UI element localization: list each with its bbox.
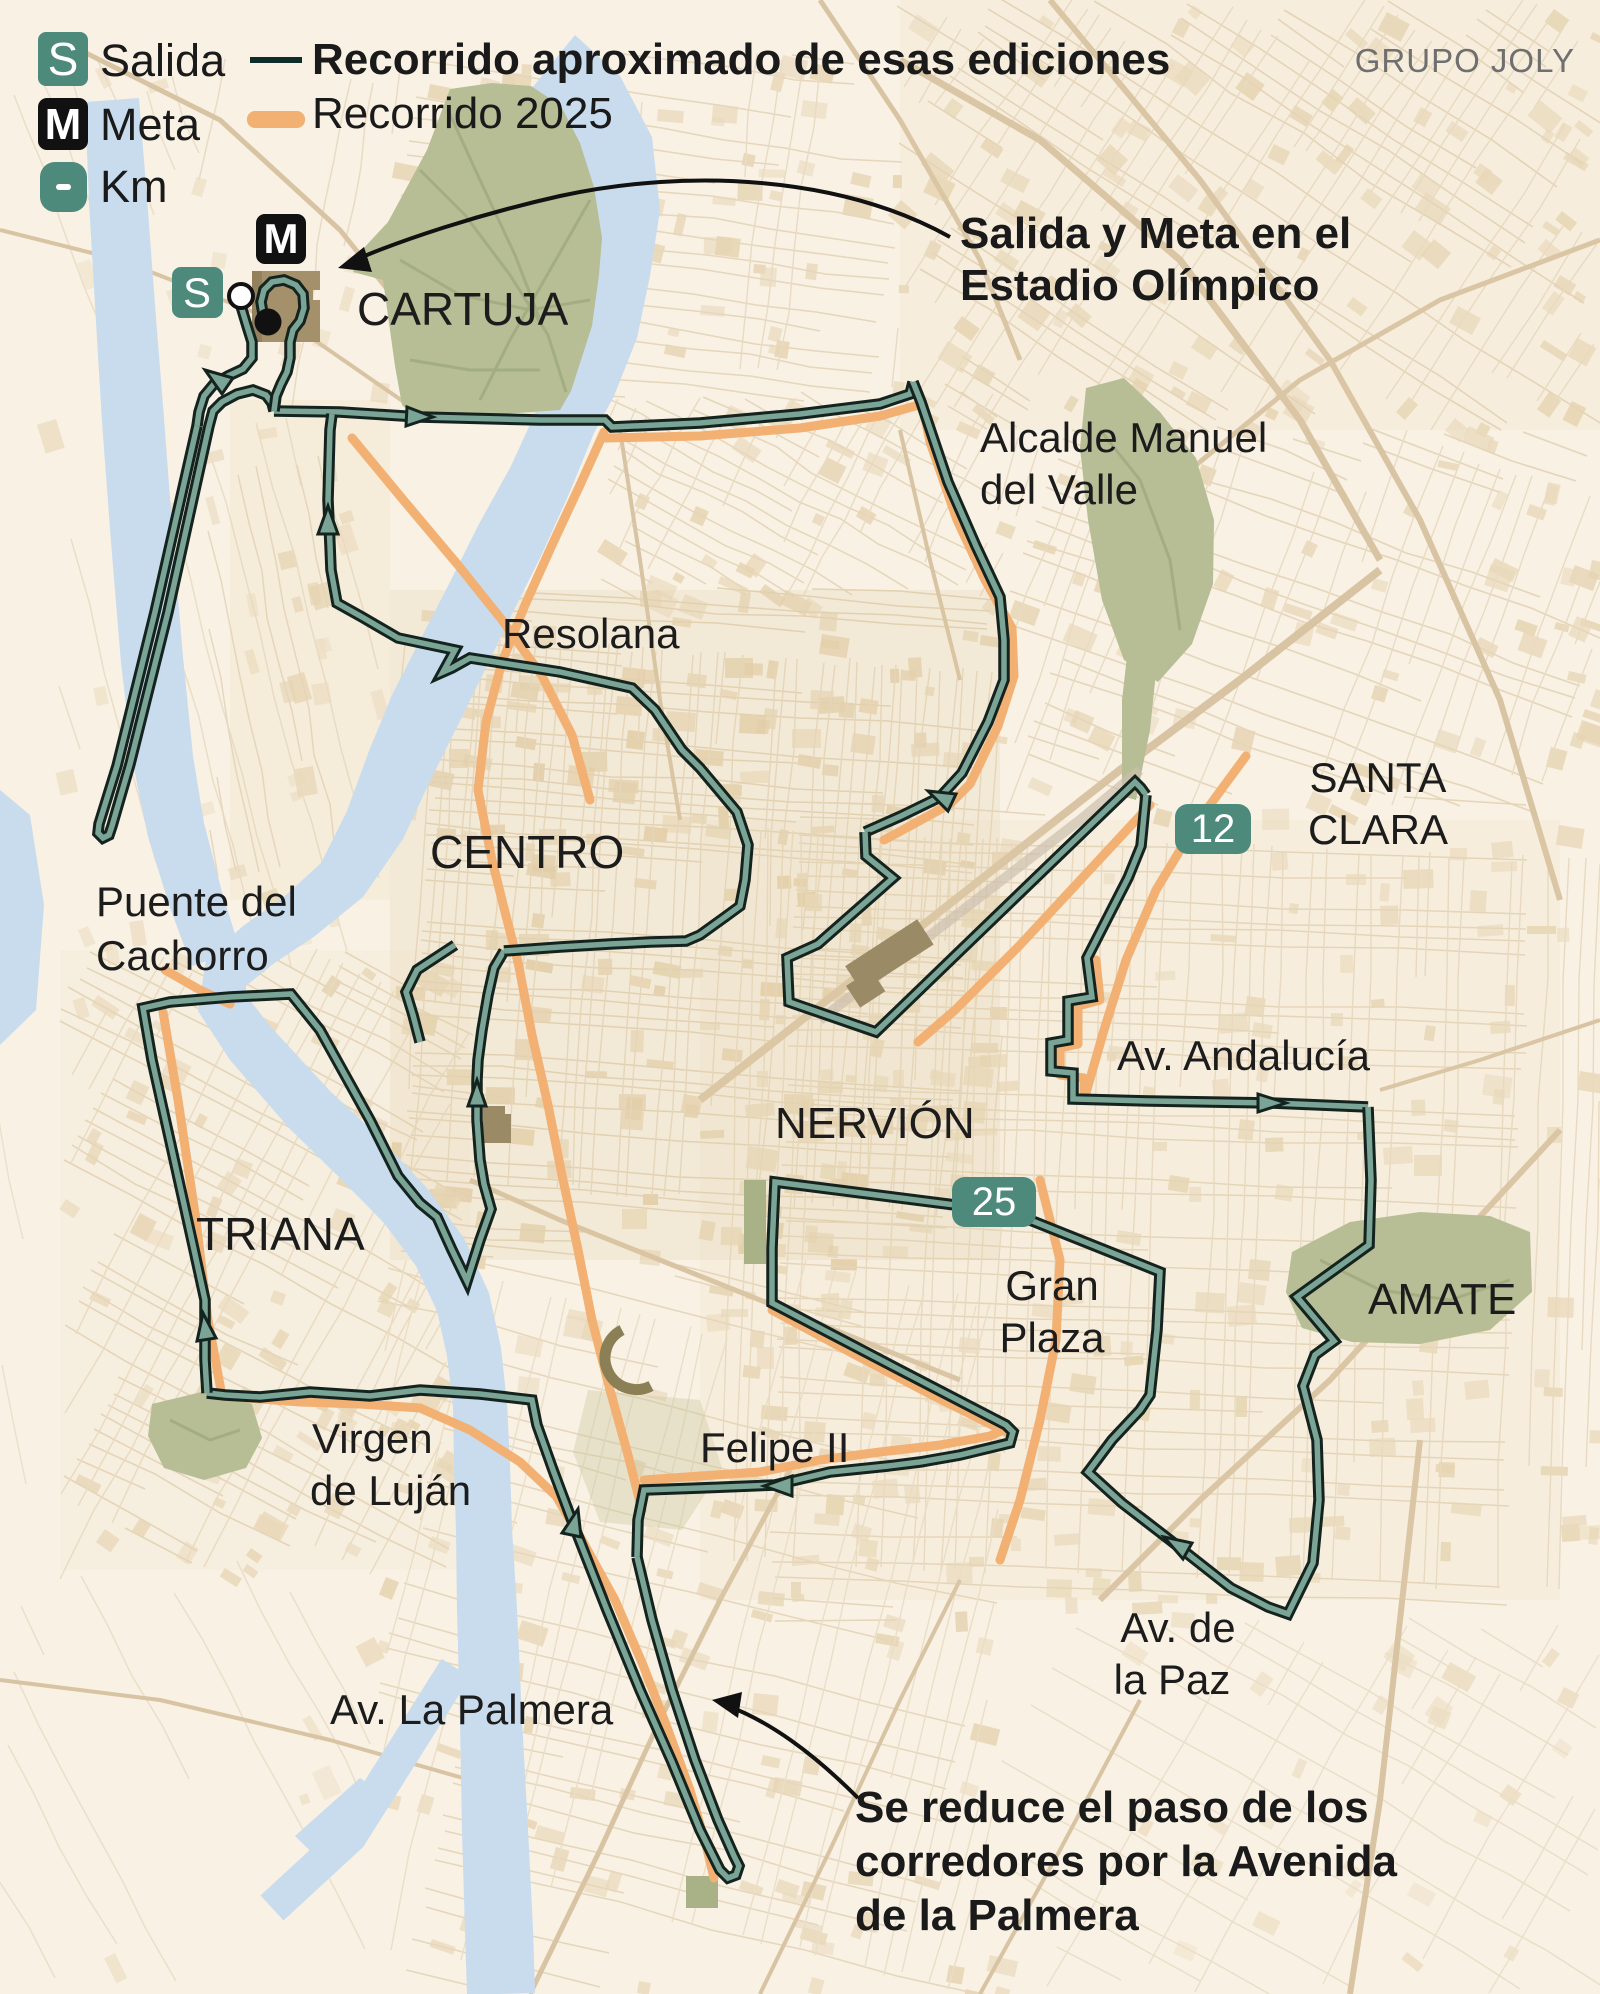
svg-text:GRUPO JOLY: GRUPO JOLY (1355, 42, 1575, 79)
svg-text:Av. de: Av. de (1120, 1604, 1235, 1651)
svg-text:Recorrido 2025: Recorrido 2025 (312, 89, 613, 138)
svg-text:Av. Andalucía: Av. Andalucía (1117, 1032, 1371, 1079)
svg-text:corredores por la Avenida: corredores por la Avenida (855, 1837, 1398, 1886)
svg-text:de Luján: de Luján (310, 1467, 471, 1514)
svg-text:NERVIÓN: NERVIÓN (775, 1099, 975, 1148)
svg-text:Av. La Palmera: Av. La Palmera (330, 1686, 614, 1733)
svg-text:M: M (45, 100, 82, 149)
svg-text:Estadio Olímpico: Estadio Olímpico (960, 261, 1319, 310)
svg-text:Plaza: Plaza (999, 1314, 1105, 1361)
svg-text:Recorrido aproximado de esas e: Recorrido aproximado de esas ediciones (312, 35, 1170, 84)
svg-text:Virgen: Virgen (312, 1415, 433, 1462)
svg-text:CARTUJA: CARTUJA (357, 283, 569, 335)
svg-text:25: 25 (972, 1180, 1017, 1224)
svg-text:Salida y Meta en el: Salida y Meta en el (960, 209, 1351, 258)
svg-text:la Paz: la Paz (1114, 1656, 1231, 1703)
svg-text:S: S (48, 33, 79, 85)
svg-text:12: 12 (1191, 807, 1236, 851)
svg-text:de la Palmera: de la Palmera (855, 1891, 1139, 1940)
svg-text:del Valle: del Valle (980, 466, 1138, 513)
svg-text:Se reduce el paso de los: Se reduce el paso de los (855, 1783, 1369, 1832)
svg-text:TRIANA: TRIANA (196, 1208, 365, 1260)
svg-text:CLARA: CLARA (1308, 806, 1448, 853)
svg-text:M: M (264, 215, 299, 262)
svg-text:Resolana: Resolana (502, 610, 680, 657)
svg-text:S: S (183, 269, 211, 316)
svg-text:Alcalde Manuel: Alcalde Manuel (980, 414, 1267, 461)
svg-text:Gran: Gran (1005, 1262, 1098, 1309)
svg-text:SANTA: SANTA (1310, 754, 1447, 801)
svg-text:Salida: Salida (100, 35, 226, 86)
svg-text:Puente del: Puente del (96, 878, 297, 925)
svg-text:CENTRO: CENTRO (430, 826, 624, 878)
svg-text:Meta: Meta (100, 99, 201, 150)
svg-text:Cachorro: Cachorro (96, 932, 269, 979)
svg-text:Felipe II: Felipe II (700, 1424, 849, 1471)
svg-text:Km: Km (100, 161, 168, 212)
svg-text:AMATE: AMATE (1368, 1275, 1516, 1324)
